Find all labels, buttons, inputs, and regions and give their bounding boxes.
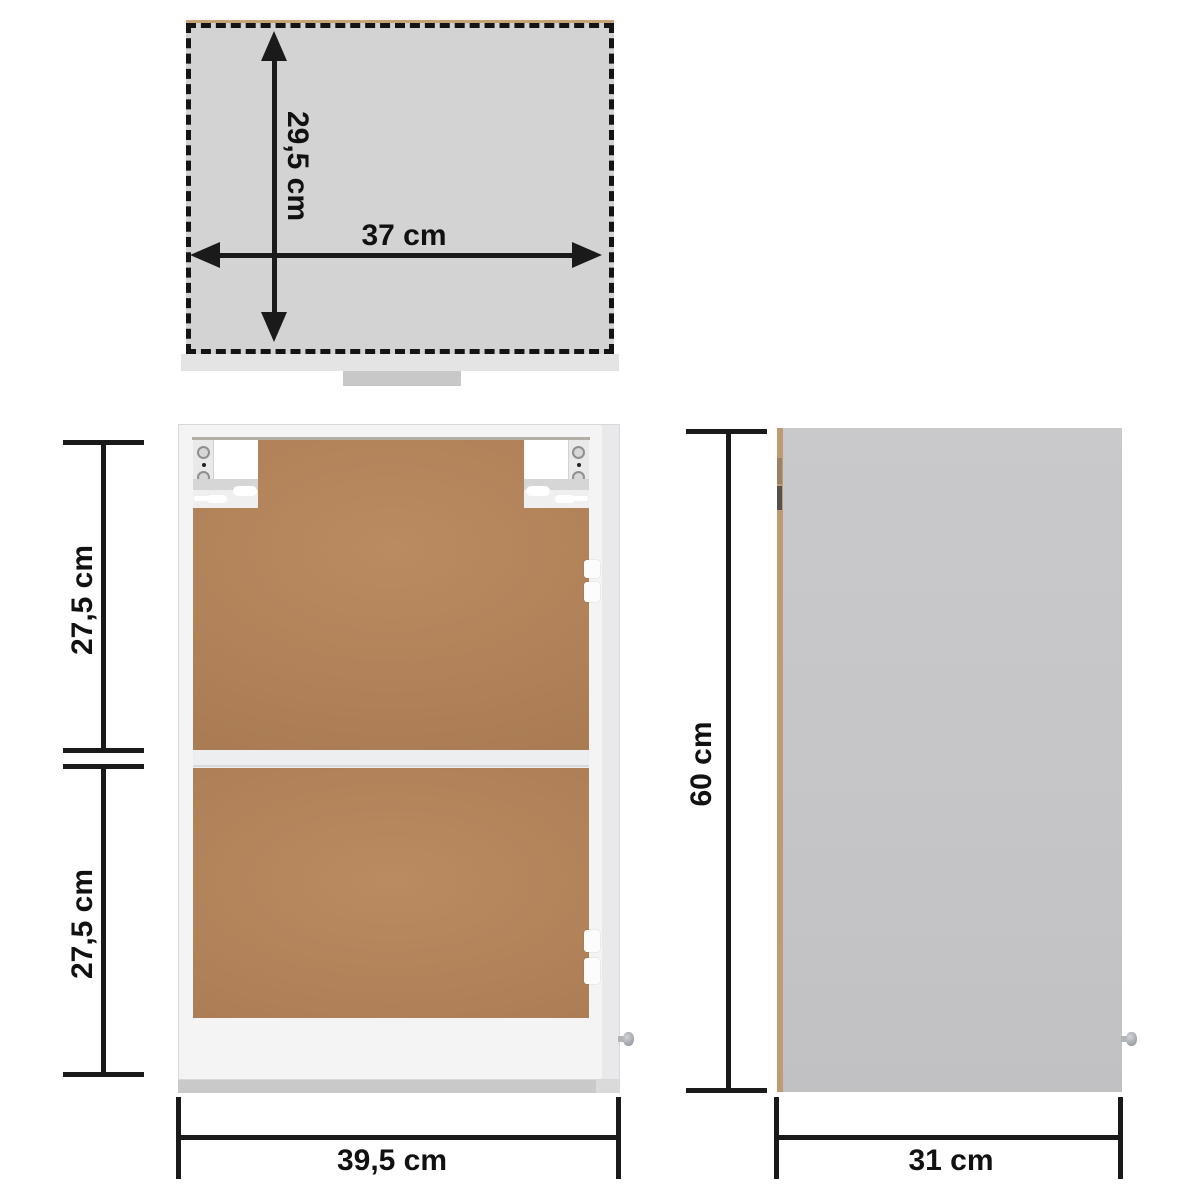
dimension-diagram: 29,5 cm 37 cm [0,0,1200,1200]
side-depth-label: 31 cm [908,1146,993,1176]
bracket-pin-dot [577,463,581,467]
hinge-tab [584,582,600,602]
arrowhead-down-icon [261,312,287,342]
tick [63,748,144,753]
cabinet-bottom-edge-right [596,1080,620,1093]
bracket-pin-dot [202,463,206,467]
rail-slot [233,486,257,496]
rail-slot [526,486,550,496]
bracket-line [101,767,106,1075]
lower-back-panel [193,768,589,1018]
front-upper-height-label: 27,5 cm [68,545,98,655]
top-view-front-strip [181,354,619,371]
hinge-tab [584,958,600,984]
rail-slot [574,496,588,501]
width-arrow-line [210,253,590,258]
rail-slot [207,495,227,503]
arrowhead-up-icon [261,31,287,61]
rail-slot [194,496,208,501]
tick [616,1097,621,1179]
knob-icon [1126,1032,1137,1046]
bracket-line [774,1135,1123,1140]
screw-icon [197,446,210,459]
screw-icon [572,446,585,459]
side-bracket-mark [777,486,782,510]
tick [63,1072,144,1077]
hinge-tab [584,560,600,578]
front-width-label: 39,5 cm [337,1146,447,1176]
knob-icon [623,1032,634,1046]
top-view-mount-tab [343,371,461,386]
side-height-label: 60 cm [687,721,717,806]
top-view-depth-label: 29,5 cm [282,111,312,221]
arrowhead-right-icon [572,242,602,268]
cabinet-bottom-edge [178,1080,620,1093]
side-panel [783,428,1122,1092]
top-view-width-label: 37 cm [361,221,446,251]
arrowhead-left-icon [190,242,220,268]
tick [1118,1097,1123,1179]
bracket-line [726,431,731,1091]
rail-slot [555,495,575,503]
bracket-line [176,1135,621,1140]
tick [686,1088,767,1093]
bracket-line [101,442,106,751]
side-bracket-mark-faint [777,458,782,484]
depth-arrow-line [272,50,277,315]
cabinet-right-frame-band [602,425,619,1079]
shelf-edge-line [193,765,589,767]
hinge-tab [584,930,600,952]
front-lower-height-label: 27,5 cm [68,869,98,979]
top-view-outline [186,23,614,354]
